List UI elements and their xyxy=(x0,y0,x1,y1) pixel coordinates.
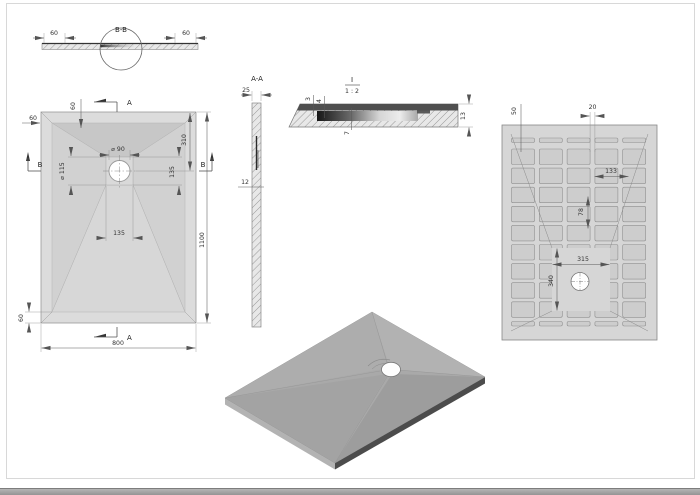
detail-scale: 1 : 2 xyxy=(345,88,359,95)
dim-60-top: 60 xyxy=(70,102,77,110)
detail-dim-3: 3 xyxy=(305,97,312,101)
section-bb-view: B-B 60 60 xyxy=(33,26,207,70)
dim-315: 315 xyxy=(577,256,589,263)
section-bb-label: B-B xyxy=(115,26,127,34)
dim-78: 78 xyxy=(578,208,585,216)
detail-dim-7: 7 xyxy=(344,131,351,135)
section-arrow-b-right-label: B xyxy=(201,161,206,169)
detail-top-skin xyxy=(297,104,458,111)
dim-1100: 1100 xyxy=(199,232,206,248)
detail-groove xyxy=(317,111,418,121)
dim-20: 20 xyxy=(589,104,597,111)
dim-drain-diameter: ⌀ 90 xyxy=(111,146,125,153)
bb-dim-60-right: 60 xyxy=(182,30,190,37)
section-arrow-a-bottom-label: A xyxy=(127,334,132,342)
isometric-view xyxy=(225,312,485,470)
detail-dim-13: 13 xyxy=(460,112,467,120)
dim-340: 340 xyxy=(548,275,555,287)
bottom-view: 50 20 133 78 315 340 xyxy=(502,104,657,340)
dim-50: 50 xyxy=(511,107,518,115)
section-aa-label: A-A xyxy=(251,75,263,83)
detail-dim-4: 4 xyxy=(316,99,323,103)
section-arrow-b-left-label: B xyxy=(38,161,43,169)
detail-i-view: I 1 : 2 3 4 7 13 xyxy=(289,76,473,135)
bb-dim-60-left: 60 xyxy=(50,30,58,37)
plan-view: 60 60 A A B B ⌀ 90 xyxy=(18,99,214,352)
dim-60-top-left: 60 xyxy=(29,115,37,122)
section-arrow-a-top-label: A xyxy=(127,99,132,107)
aa-dim-12: 12 xyxy=(241,179,249,186)
dim-135-vertical: 135 xyxy=(169,166,176,178)
cad-drawing-sheet: B-B 60 60 60 xyxy=(0,0,700,495)
drawing-canvas: B-B 60 60 60 xyxy=(0,0,700,495)
iso-drain-hole xyxy=(382,362,401,376)
dim-800: 800 xyxy=(112,340,124,347)
dim-60-bottom-left: 60 xyxy=(18,314,25,322)
bb-groove-shadow xyxy=(100,45,134,48)
dim-135-horizontal: 135 xyxy=(113,230,125,237)
dim-133: 133 xyxy=(605,168,617,175)
section-aa-view: A-A 25 12 xyxy=(238,75,272,327)
window-bottom-strip xyxy=(0,488,700,495)
aa-dim-25: 25 xyxy=(242,87,250,94)
dim-310: 310 xyxy=(181,134,188,146)
dim-flange-diameter: ⌀ 115 xyxy=(59,162,66,180)
detail-label: I xyxy=(351,76,353,84)
